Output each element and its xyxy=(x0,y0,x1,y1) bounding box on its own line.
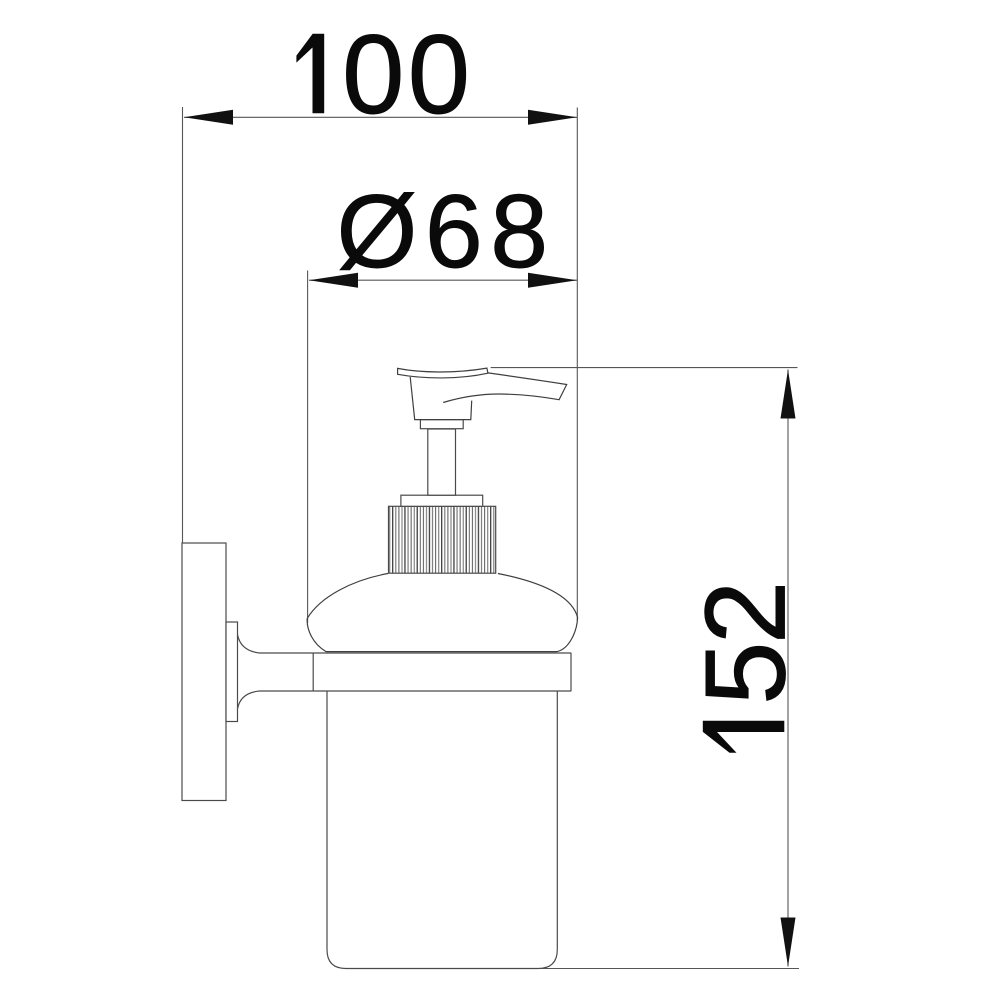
svg-text:Ø68: Ø68 xyxy=(337,174,556,290)
svg-text:00: 00 xyxy=(342,12,473,137)
svg-text:52: 52 xyxy=(682,583,809,705)
